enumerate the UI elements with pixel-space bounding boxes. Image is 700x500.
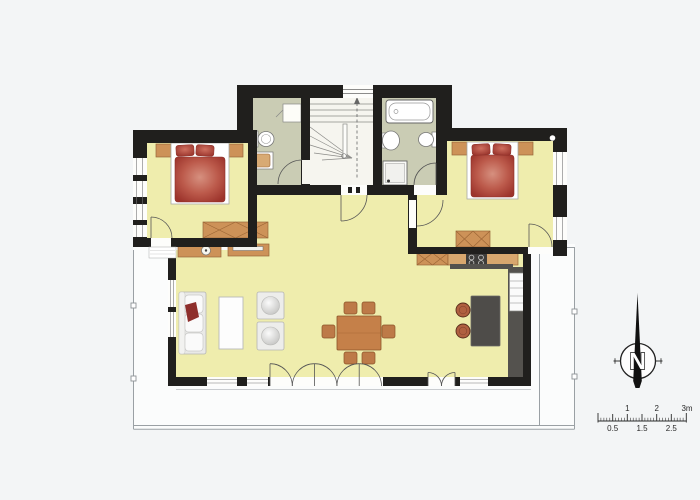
bar-stool-icon — [456, 303, 470, 317]
wc-door-opening — [302, 160, 310, 184]
scale-label-3m: 3m — [681, 404, 692, 413]
nightstand-icon — [452, 142, 467, 155]
dresser-icon — [456, 231, 490, 247]
scale-label-15: 1.5 — [636, 424, 648, 433]
floor-plan-drawing: N 1 2 3m 0.5 — [0, 0, 700, 500]
window-icon — [168, 280, 176, 337]
terrace-door-opening — [528, 247, 553, 254]
fridge-oven-column-icon — [510, 273, 525, 311]
shower-icon — [383, 161, 407, 185]
scale-bar: 1 2 3m 0.5 1.5 2.5 — [598, 404, 693, 433]
compass-north-label: N — [629, 348, 646, 374]
nightstand-icon — [156, 144, 171, 157]
french-doors-opening — [270, 377, 383, 386]
kitchen-cabinet-icon — [417, 253, 448, 265]
north-compass: N — [614, 293, 663, 388]
scale-label-25: 2.5 — [666, 424, 678, 433]
wall-corner-marker — [550, 135, 556, 141]
bedroom-right-door-opening — [409, 200, 416, 228]
kitchen-island — [471, 296, 500, 346]
entrance-door-icon — [343, 85, 373, 98]
floor-plan-page: N 1 2 3m 0.5 — [0, 0, 700, 500]
scale-label-05: 0.5 — [607, 424, 619, 433]
armchair-icon — [257, 292, 284, 319]
hall-door-opening — [341, 185, 367, 195]
bathtub-icon — [386, 100, 433, 123]
armchair-icon — [257, 322, 284, 350]
sofa-icon — [179, 292, 206, 354]
door-threshold — [149, 247, 176, 258]
hall-floor — [310, 98, 373, 185]
kitchen-counter-edge — [450, 264, 513, 269]
washbasin-icon — [382, 131, 400, 150]
nightstand-icon — [229, 144, 243, 157]
double-bed-icon — [171, 143, 229, 204]
coffee-table-icon — [219, 297, 243, 349]
bathroom-door-opening — [414, 185, 436, 195]
dresser-icon — [203, 222, 268, 238]
bedroom-left-door-opening — [151, 238, 171, 247]
nightstand-icon — [518, 142, 533, 155]
double-bed-icon — [467, 142, 518, 199]
scale-label-1: 1 — [625, 404, 630, 413]
toilet-icon — [419, 132, 438, 147]
bar-stool-icon — [456, 324, 470, 338]
scale-label-2: 2 — [654, 404, 659, 413]
